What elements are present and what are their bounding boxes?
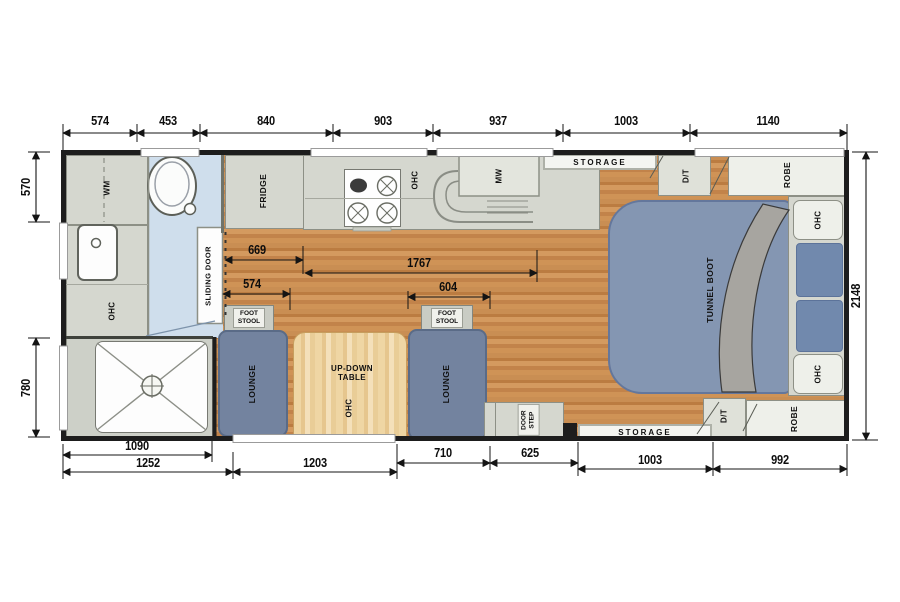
dim-bottom-1252: 1252 [136,456,160,470]
ohc-table-label: OHC [344,399,353,418]
foot-stool-left: FOOT STOOL [224,305,274,331]
dim-interior-669: 669 [248,243,266,257]
foot-stool-right: FOOT STOOL [421,305,473,331]
dim-interior-604: 604 [439,280,457,294]
dim-bottom-710: 710 [434,446,452,460]
pillow [796,243,843,297]
foot-stool-left-label: FOOT STOOL [233,308,265,328]
microwave-label: MW [494,168,503,183]
dim-top-4: 903 [374,114,392,128]
dressing-table-bottom-label: D/T [719,409,728,423]
door-step-label: DOOR STEP [518,404,540,436]
dim-right-2148: 2148 [849,284,863,308]
dim-bottom-625: 625 [521,446,539,460]
dim-top-5: 937 [489,114,507,128]
up-down-table [293,332,407,438]
storage-bottom-label: STORAGE [618,428,671,437]
fridge-label: FRIDGE [259,174,269,209]
tunnel-boot-label: TUNNEL BOOT [706,257,716,323]
dim-bottom-992: 992 [771,453,789,467]
up-down-table-label: UP-DOWN TABLE [331,364,373,382]
washing-machine-label: WM [102,180,111,195]
robe-bottom-label: ROBE [790,406,800,432]
ohc-vanity-label: OHC [107,302,116,321]
lounge-right-label: LOUNGE [442,365,452,404]
robe-top-label: ROBE [783,162,793,188]
dim-bottom-1203: 1203 [303,456,327,470]
dim-left-570: 570 [19,178,33,196]
dim-top-3: 840 [257,114,275,128]
ohc-bedhead-bottom-label: OHC [813,365,822,384]
caravan-floor-plan: STORAGE STORAGE DOOR STEP FOOT STOOL FOO… [0,0,900,602]
shower-pan [95,341,208,433]
dim-top-1: 574 [91,114,109,128]
dressing-table-top-label: D/T [681,169,690,183]
door-step: DOOR STEP [494,402,564,438]
dim-interior-574: 574 [243,277,261,291]
bed [608,200,792,394]
lounge-left-label: LOUNGE [248,365,258,404]
dim-bottom-1003: 1003 [638,453,662,467]
dim-left-780: 780 [19,379,33,397]
dim-top-2: 453 [159,114,177,128]
dim-top-6: 1003 [614,114,638,128]
storage-locker-top: STORAGE [543,154,657,170]
lounge-end-cabinet [484,402,496,438]
dim-bottom-1090: 1090 [125,439,149,453]
dim-interior-1767: 1767 [407,256,431,270]
storage-top-label: STORAGE [573,158,626,167]
ohc-kitchen-label: OHC [410,171,419,190]
pillow [796,300,843,352]
storage-locker-bottom: STORAGE [578,424,712,440]
dim-top-7: 1140 [756,114,779,128]
sliding-door-label: SLIDING DOOR [205,246,214,306]
foot-stool-right-label: FOOT STOOL [431,308,463,328]
ohc-bedhead-top-label: OHC [813,211,822,230]
stove-cooktop [344,169,401,227]
